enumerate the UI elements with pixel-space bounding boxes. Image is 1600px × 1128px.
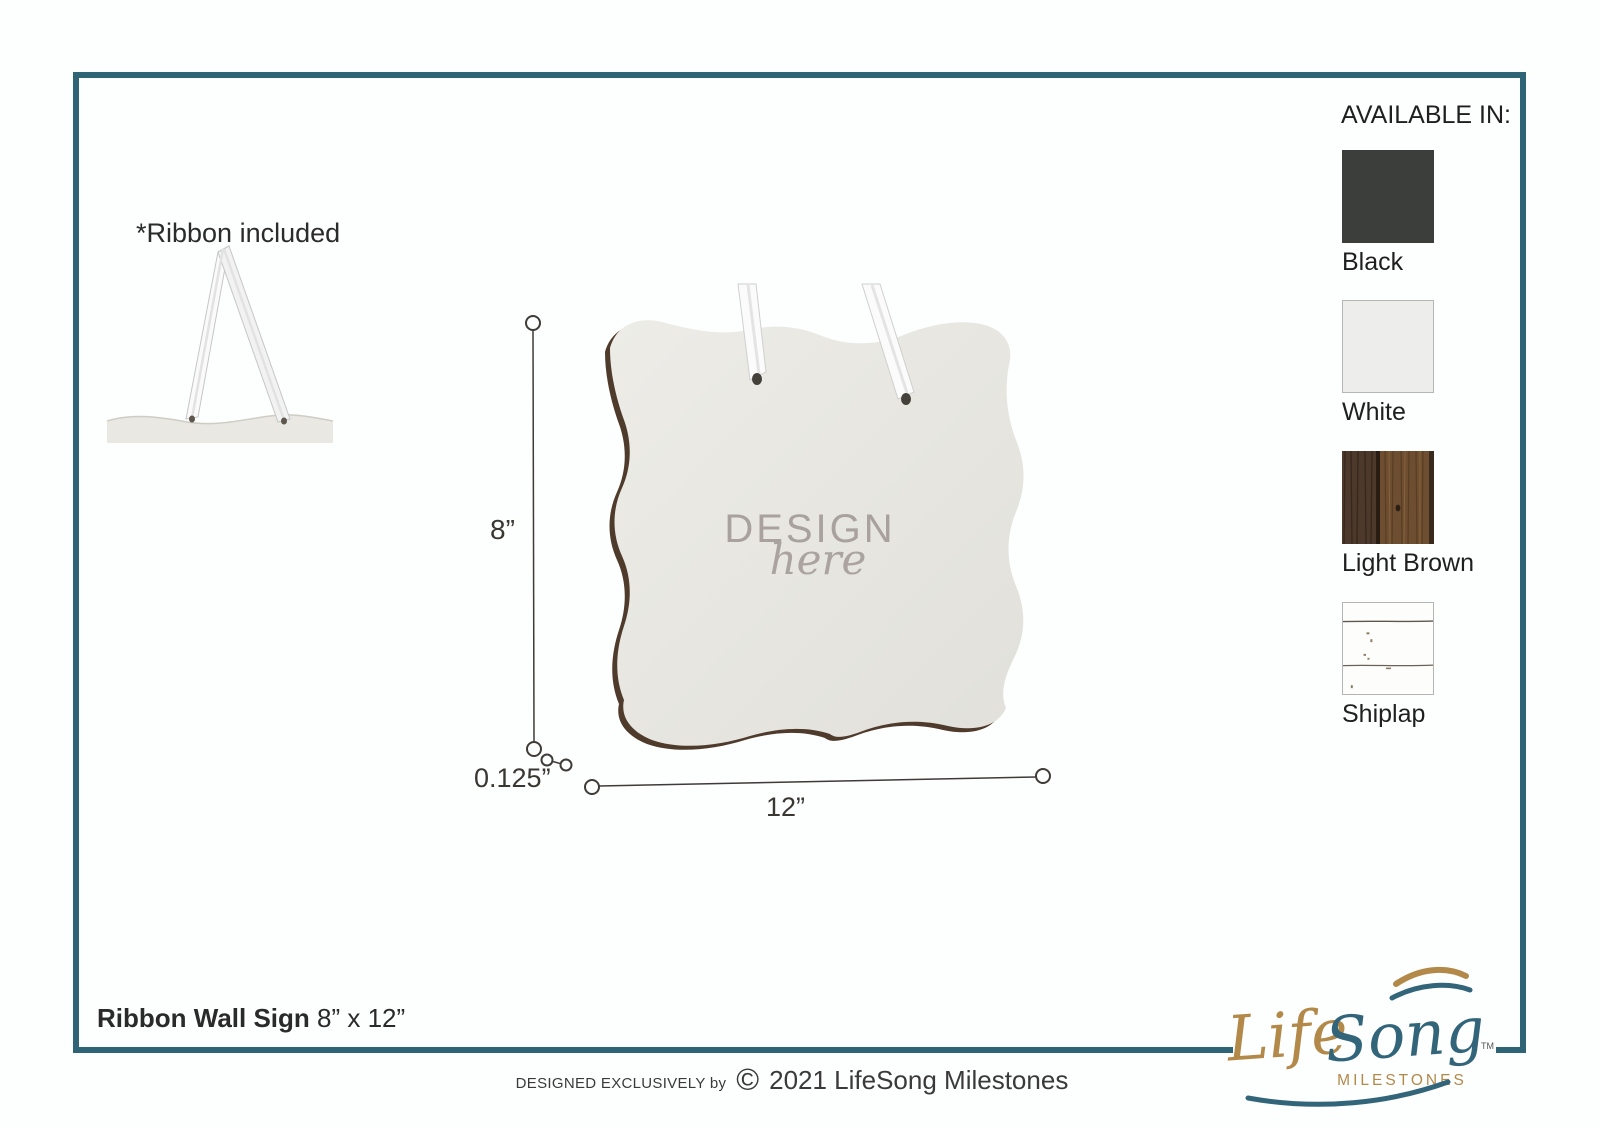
copyright-icon: © [736,1062,759,1098]
dimension-thickness-label: 0.125” [474,763,551,794]
swatch-white [1342,300,1434,393]
swatch-black-label: Black [1342,248,1403,277]
logo-song-text: Song [1323,993,1487,1077]
lifesong-logo: Life Song MILESTONES TM [1190,948,1510,1118]
credit-prefix: DESIGNED EXCLUSIVELY by [516,1069,727,1092]
swatch-shiplap-label: Shiplap [1342,700,1425,729]
swatch-light-brown [1342,451,1434,544]
frame-bottom-left [73,1047,1233,1053]
logo-tm-mark: TM [1481,1041,1494,1051]
swatch-white-label: White [1342,398,1406,427]
swatch-shiplap [1342,602,1434,695]
available-in-title: AVAILABLE IN: [1341,101,1511,130]
design-placeholder-script: here [770,535,867,584]
product-title: Ribbon Wall Sign 8” x 12” [97,1003,405,1034]
swatch-black [1342,150,1434,243]
ribbon-thumbnail-image [105,240,345,450]
product-name: Ribbon Wall Sign [97,1003,310,1033]
dimension-width-label: 12” [766,792,805,823]
logo-swoosh-gold [1396,970,1466,984]
frame-left [73,72,79,1053]
swatch-light-brown-label: Light Brown [1342,549,1474,578]
product-spec-sheet: *Ribbon included 8” 0.125” 12” [0,0,1600,1128]
frame-right [1520,72,1526,1053]
frame-top [73,72,1526,78]
dimension-height-label: 8” [490,514,515,546]
wall-sign-mockup: DESIGN here [580,268,1040,768]
product-size: 8” x 12” [317,1003,405,1033]
credit-text: 2021 LifeSong Milestones [769,1065,1068,1096]
